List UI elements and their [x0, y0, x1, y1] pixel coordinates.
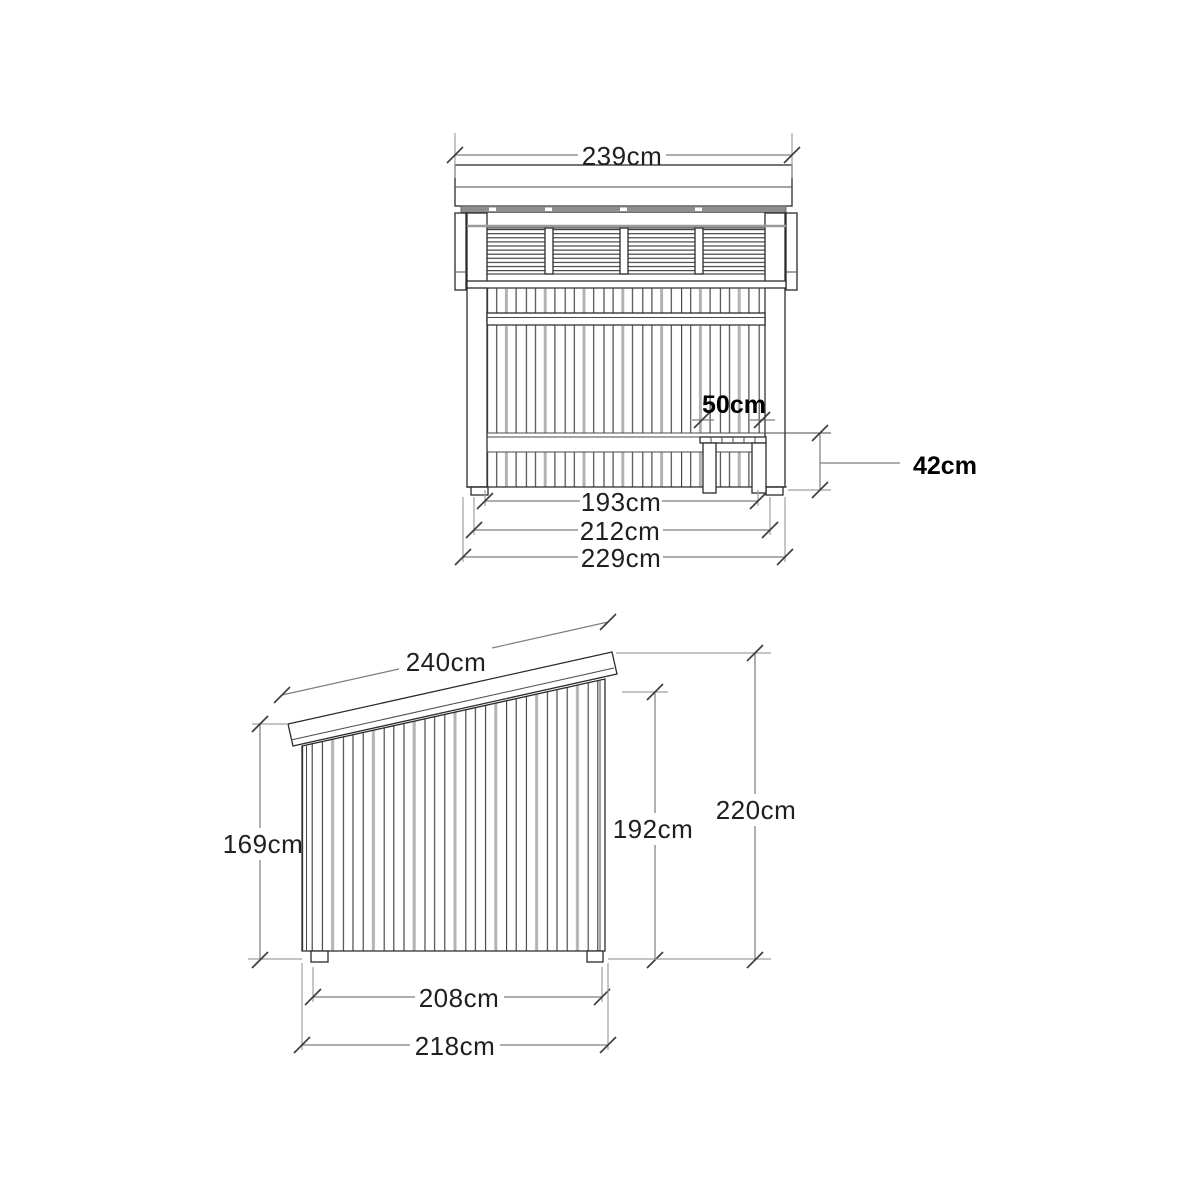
bench-leg-right [752, 443, 766, 493]
dim-line [492, 622, 608, 648]
side-elevation-view: 240cm 169cm 192cm [223, 614, 797, 1061]
front-roof-slab [455, 165, 792, 206]
dim-label-opening-height: 192cm [613, 814, 694, 844]
dim-line [282, 669, 399, 695]
dim-label-inner-width: 193cm [581, 487, 662, 517]
roof-clip [695, 208, 702, 212]
front-wall-rail-band [487, 313, 765, 325]
front-left-post [467, 213, 487, 487]
technical-drawing-canvas: 239cm 50cm 42cm 193cm [0, 0, 1200, 1200]
roof-clip [489, 208, 496, 212]
dim-tick [274, 687, 290, 703]
dim-label-roof-length: 240cm [406, 647, 487, 677]
front-right-post [765, 213, 785, 487]
side-right-foot [587, 951, 603, 962]
side-left-foot [311, 951, 328, 962]
bench-leg-left [703, 443, 716, 493]
dim-label-low-side-height: 169cm [223, 829, 304, 859]
dim-label-bench-depth: 50cm [702, 391, 766, 419]
roof-clip [545, 208, 552, 212]
louver-mullion [695, 228, 703, 274]
louver-mullion [620, 228, 628, 274]
front-wall-planks-upper [487, 288, 765, 313]
front-louver-band [467, 226, 786, 288]
front-right-foot [766, 487, 783, 495]
dim-tick [600, 614, 616, 630]
front-left-outer-trim [455, 213, 466, 290]
dim-label-overall-depth: 218cm [415, 1031, 496, 1061]
dim-side-base-depth: 208cm [305, 967, 610, 1013]
front-roof [455, 165, 792, 213]
dim-side-overall-height: 220cm [608, 645, 796, 968]
louver-mullion [545, 228, 553, 274]
louver-bottom-rail [467, 281, 786, 288]
dim-label-frame-width: 212cm [580, 516, 661, 546]
dim-side-opening-height: 192cm [613, 684, 694, 968]
dim-label-bench-height: 42cm [913, 452, 977, 480]
dim-label-overall-width: 229cm [581, 543, 662, 573]
front-right-outer-trim [786, 213, 797, 290]
dim-bench-height: 42cm [788, 425, 977, 498]
dim-side-low-height: 169cm [223, 716, 304, 968]
dim-label-roof-width: 239cm [582, 141, 663, 171]
front-wall-planks-lower [487, 452, 765, 487]
front-wall [467, 288, 786, 487]
dim-label-base-depth: 208cm [419, 983, 500, 1013]
roof-clip [620, 208, 627, 212]
dim-front-inner-width: 193cm [477, 487, 766, 517]
front-elevation-view: 239cm 50cm 42cm 193cm [447, 133, 977, 573]
dim-label-overall-height: 220cm [716, 795, 797, 825]
technical-drawing-page: 239cm 50cm 42cm 193cm [0, 0, 1200, 1200]
